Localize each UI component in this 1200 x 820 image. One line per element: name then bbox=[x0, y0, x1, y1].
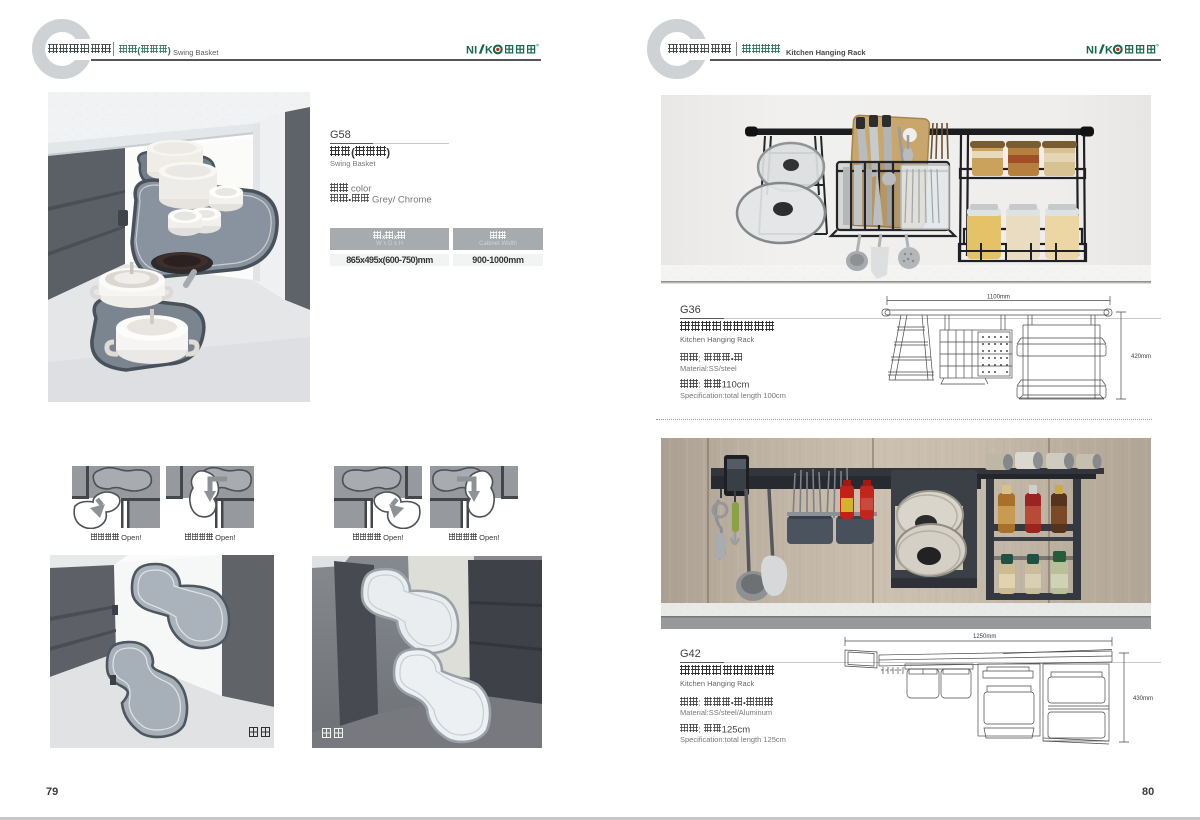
svg-text:K: K bbox=[1105, 45, 1113, 56]
svg-text:NI: NI bbox=[466, 45, 477, 56]
svg-text:K: K bbox=[485, 45, 493, 56]
svg-text:1100mm: 1100mm bbox=[987, 295, 1010, 301]
svg-text:420mm: 420mm bbox=[1131, 354, 1151, 360]
svg-text:430mm: 430mm bbox=[1133, 696, 1153, 702]
svg-text:1250mm: 1250mm bbox=[973, 634, 996, 640]
svg-text:NI: NI bbox=[1086, 45, 1097, 56]
